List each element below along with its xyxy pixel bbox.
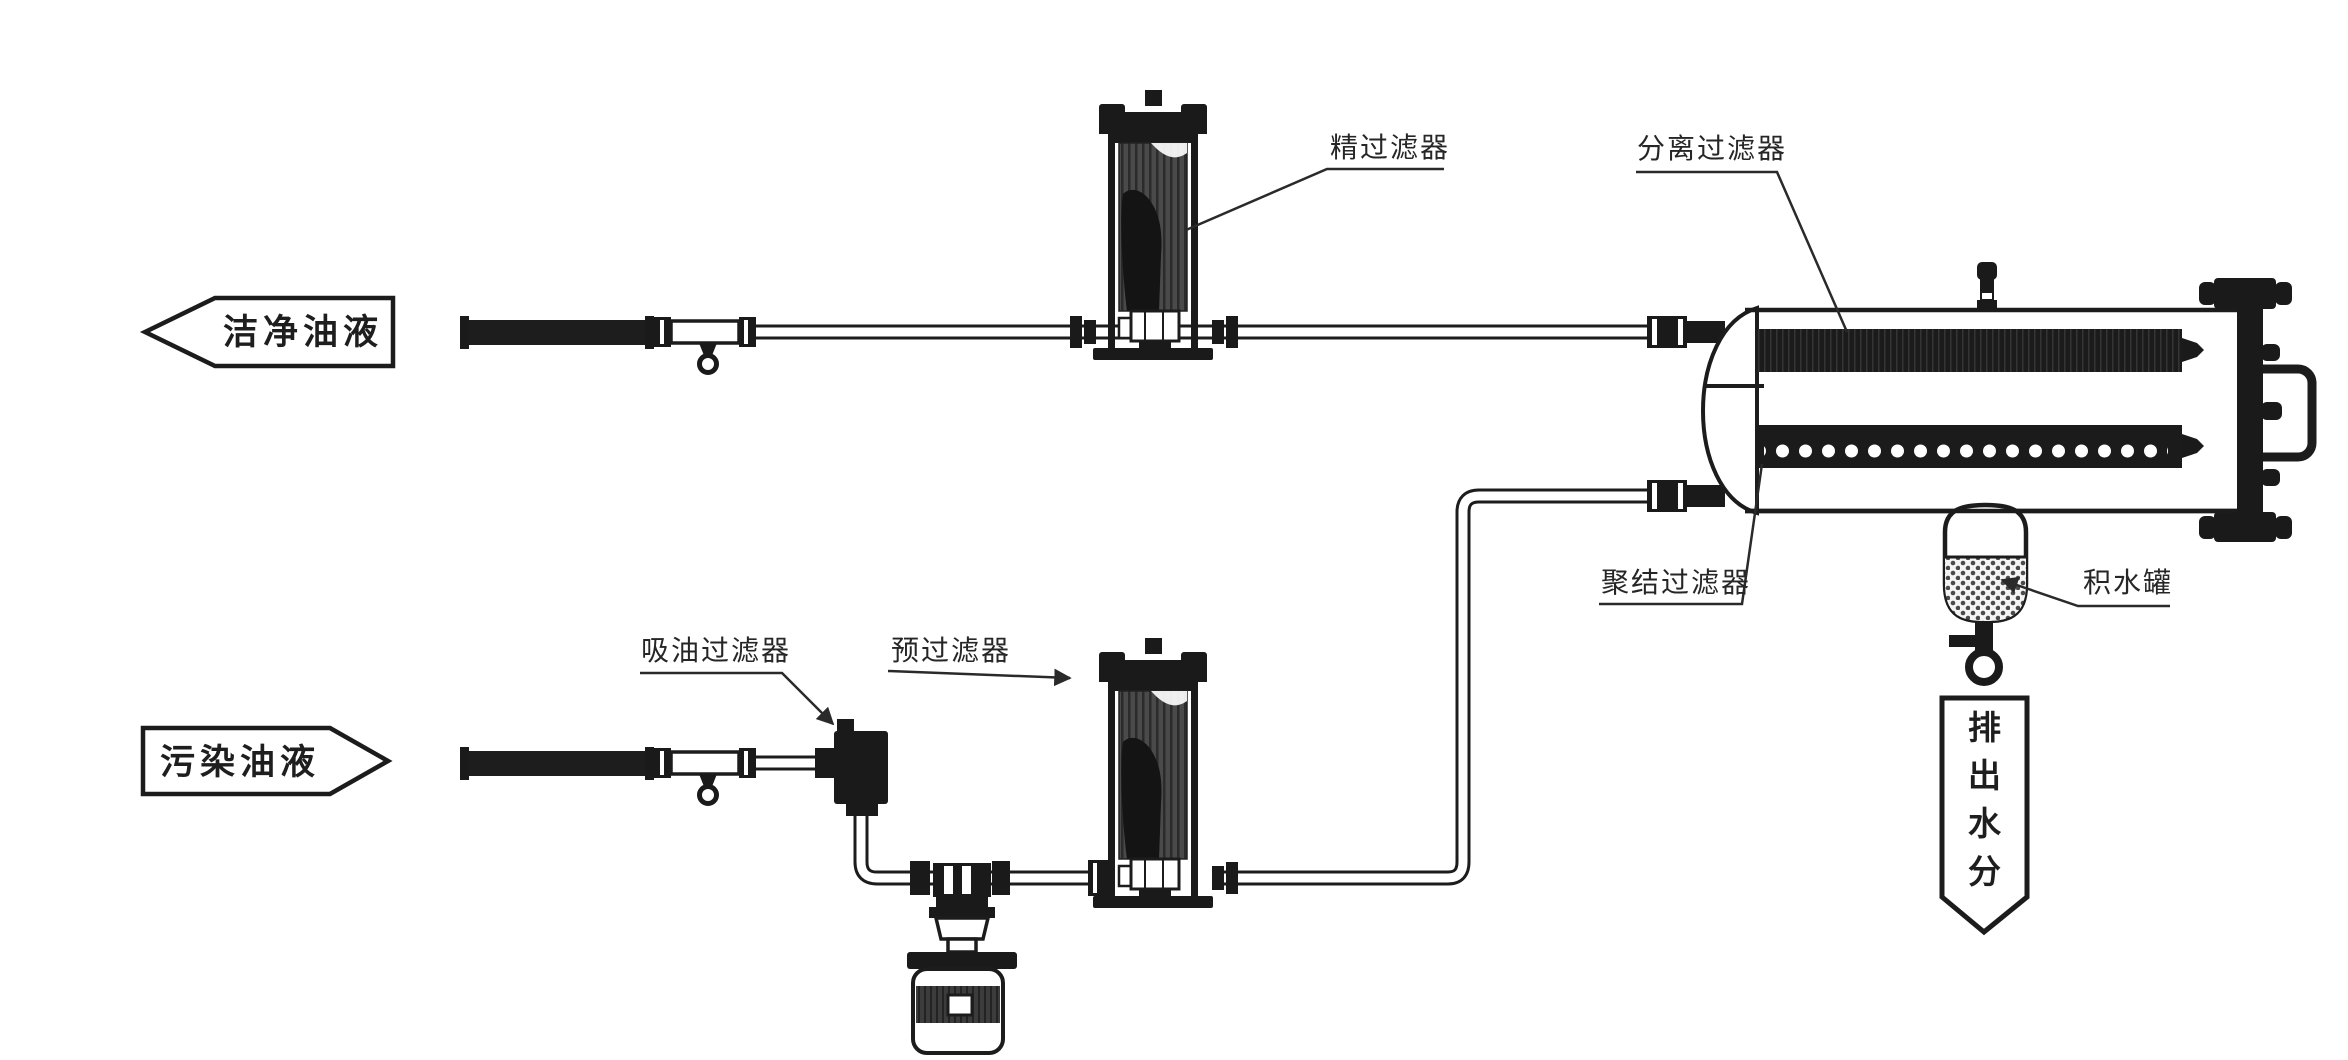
- label-water-tank: 积水罐: [2083, 568, 2173, 599]
- vent-fitting: [1977, 262, 1997, 310]
- coalescing-filter-element: [1756, 425, 2204, 468]
- valve-bottom: [654, 748, 756, 804]
- diagram-canvas: 洁净油液 污染油液 排出水分 精过滤器 分离过滤器 吸油过滤器 预过滤器 聚结过…: [0, 0, 2348, 1060]
- clean-oil-banner-label: 洁净油液: [212, 312, 394, 354]
- label-separation-filter: 分离过滤器: [1637, 134, 1787, 165]
- label-pre-filter: 预过滤器: [891, 636, 1011, 667]
- flex-hose-bottom: [460, 747, 654, 780]
- pre-filter: [1093, 638, 1213, 908]
- pump-motor-unit: [907, 860, 1110, 1053]
- suction-filter: [815, 719, 888, 816]
- flex-hose-top: [460, 316, 654, 349]
- label-fine-filter: 精过滤器: [1330, 133, 1450, 164]
- separation-filter-element: [1758, 329, 2204, 372]
- discharge-water-banner-label: 排出水分: [1953, 704, 2016, 895]
- label-coalescing-filter: 聚结过滤器: [1601, 568, 1751, 599]
- label-suction-filter: 吸油过滤器: [641, 636, 791, 667]
- drain-valve: [1949, 621, 1999, 682]
- piping-diagram-artwork: [0, 0, 2348, 1060]
- contaminated-oil-banner-label: 污染油液: [148, 742, 332, 784]
- valve-top: [654, 317, 756, 373]
- pipe-prefilter-to-tank: [1213, 496, 1700, 878]
